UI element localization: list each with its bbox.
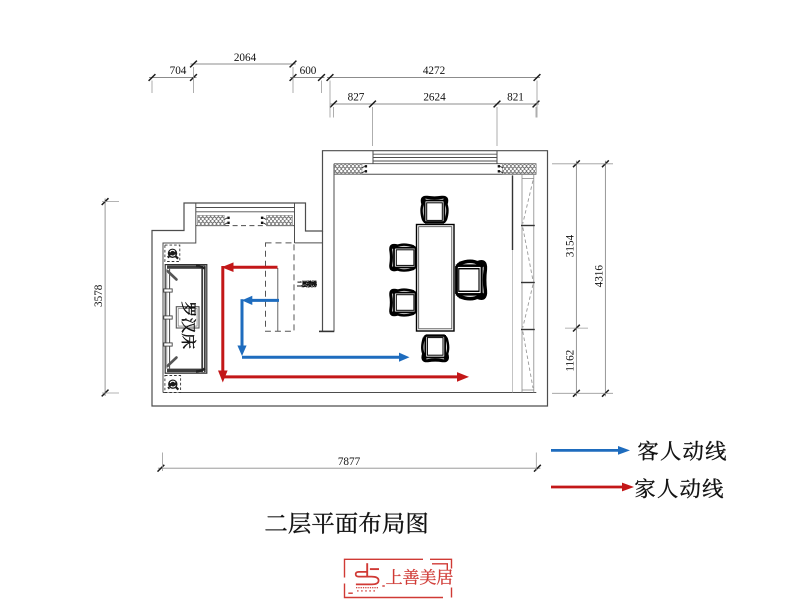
svg-text:2064: 2064 [234,52,257,64]
svg-text:821: 821 [507,92,524,104]
svg-text:704: 704 [170,65,187,77]
svg-text:3578: 3578 [93,284,105,307]
svg-text:2624: 2624 [423,92,446,104]
svg-text:4316: 4316 [593,265,605,288]
svg-text:4272: 4272 [423,65,445,77]
svg-text:7877: 7877 [338,456,361,468]
svg-text:600: 600 [300,65,317,77]
svg-text:3154: 3154 [564,234,576,257]
svg-text:827: 827 [348,92,365,104]
svg-text:1162: 1162 [564,350,576,372]
